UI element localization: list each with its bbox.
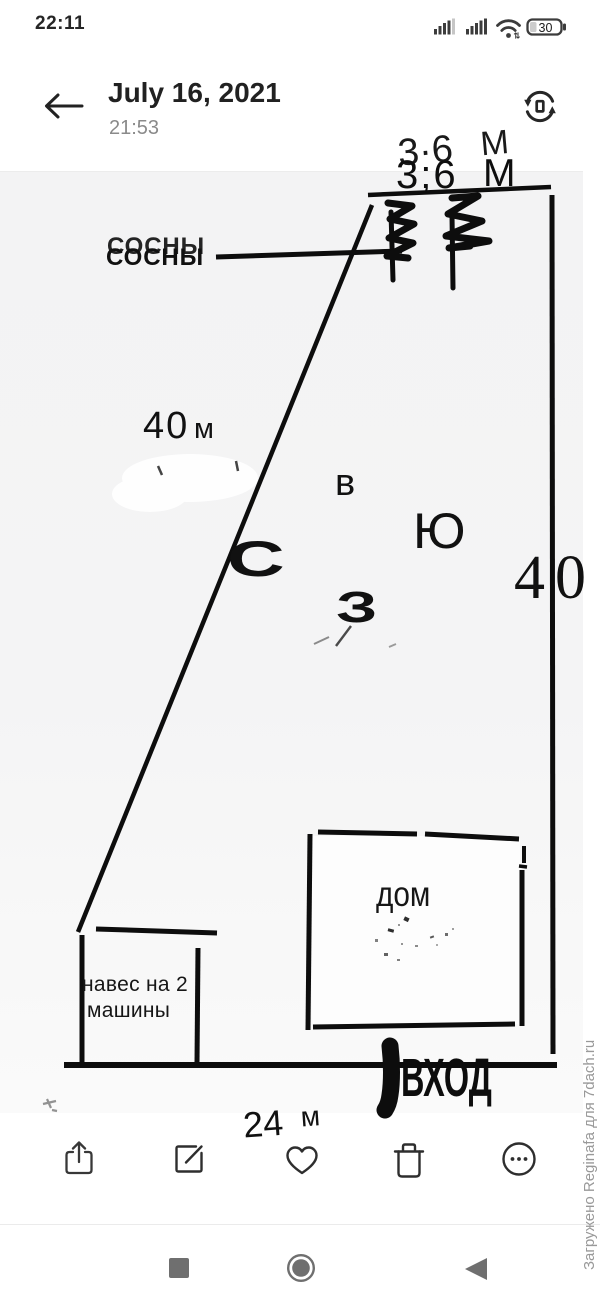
svg-text:дом: дом	[376, 875, 430, 914]
svg-text:машины: машины	[87, 999, 170, 1022]
svg-text:Ю: Ю	[413, 503, 466, 559]
svg-text:24: 24	[242, 1102, 285, 1146]
svg-text:м: м	[300, 1100, 321, 1132]
svg-text:м: м	[194, 413, 214, 445]
svg-text:40: 40	[514, 544, 596, 612]
svg-text:навес на 2: навес на 2	[82, 973, 188, 996]
svg-text:ВХОД: ВХОД	[401, 1049, 492, 1108]
svg-text:в: в	[335, 462, 355, 504]
svg-text:40: 40	[143, 405, 189, 447]
svg-text:З: З	[336, 582, 377, 631]
svg-text:С: С	[227, 532, 285, 587]
svg-text:СОСНЫ: СОСНЫ	[106, 244, 204, 271]
